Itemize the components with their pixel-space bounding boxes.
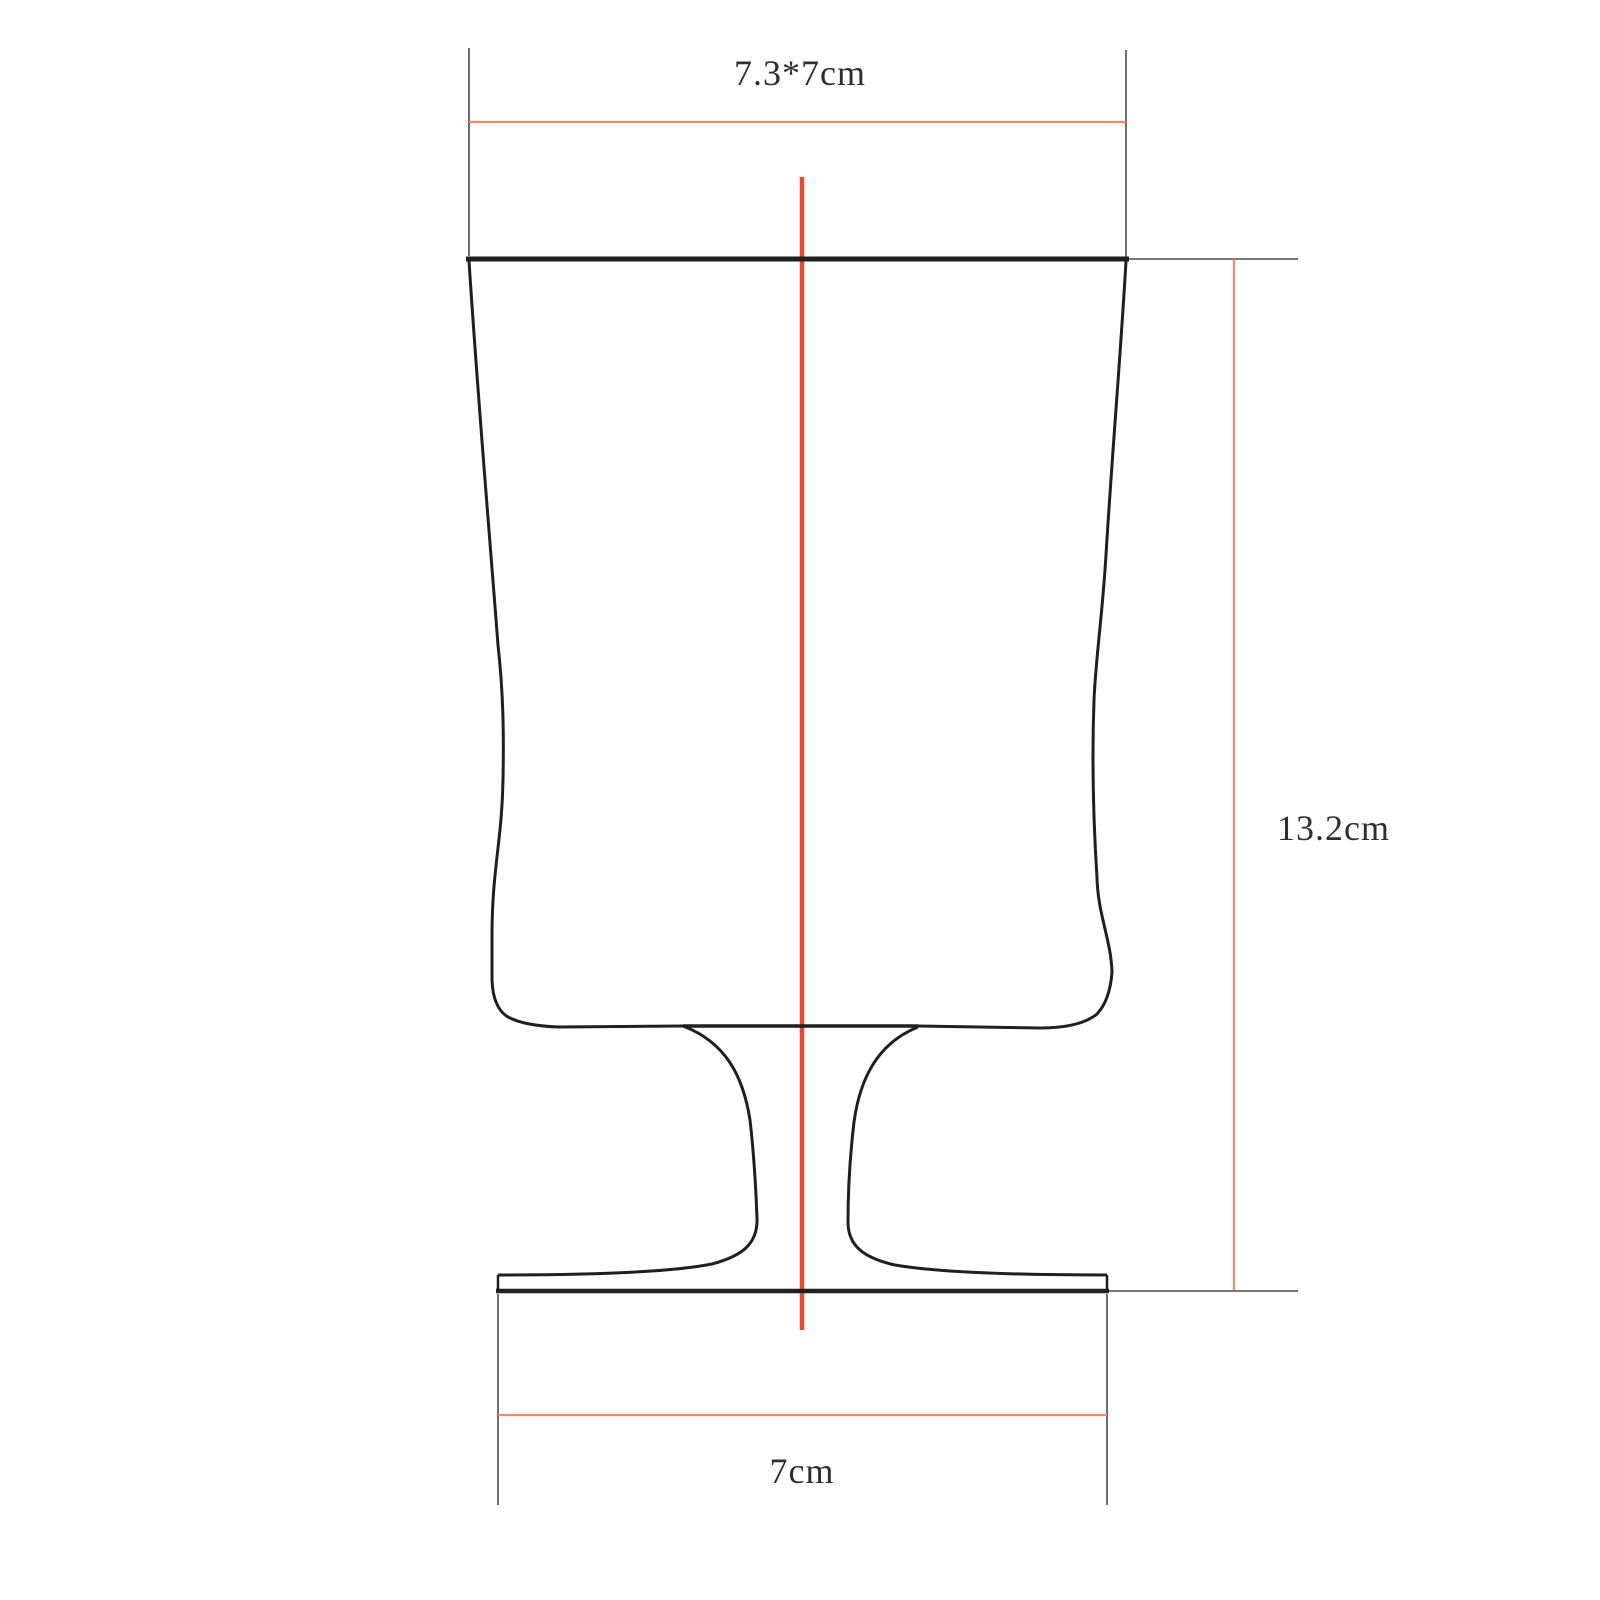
base-width-label: 7cm [770, 1451, 835, 1491]
bowl-profile [469, 261, 1126, 1028]
stem-right-profile [848, 1027, 1107, 1275]
top-width-label: 7.3*7cm [734, 53, 866, 93]
extension-lines [469, 48, 1298, 1505]
height-label: 13.2cm [1277, 808, 1390, 848]
stem-left-profile [498, 1026, 757, 1275]
goblet-outline [466, 259, 1129, 1291]
dimension-lines [469, 122, 1234, 1415]
goblet-dimension-drawing: 7.3*7cm 13.2cm 7cm [0, 0, 1600, 1600]
dimension-drawing-canvas: 7.3*7cm 13.2cm 7cm [0, 0, 1600, 1600]
